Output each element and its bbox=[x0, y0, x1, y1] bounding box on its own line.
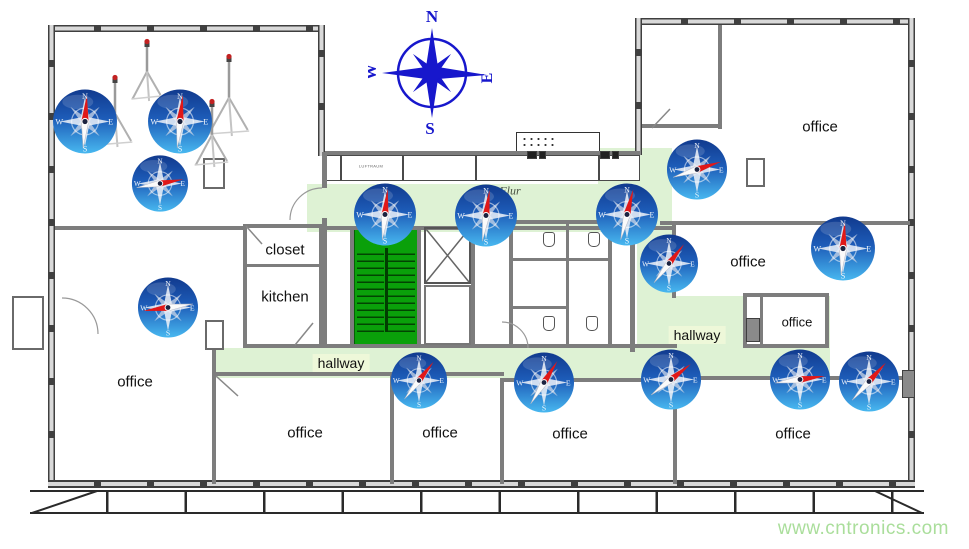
wall-segment bbox=[642, 124, 722, 128]
svg-text:E: E bbox=[408, 211, 413, 220]
rose-letter-s: S bbox=[425, 119, 434, 138]
wall-segment bbox=[500, 378, 504, 484]
svg-text:W: W bbox=[140, 303, 148, 312]
rose-letter-n: N bbox=[426, 7, 439, 26]
stair-divider bbox=[385, 248, 388, 332]
toilet bbox=[543, 316, 555, 331]
svg-text:S: S bbox=[867, 403, 871, 412]
svg-text:S: S bbox=[383, 237, 387, 246]
svg-text:E: E bbox=[108, 118, 113, 127]
compass-marker-icon: N E S W bbox=[454, 184, 518, 253]
svg-text:S: S bbox=[625, 237, 629, 246]
wall-segment bbox=[243, 224, 247, 348]
watermark: www.cntronics.com bbox=[778, 518, 949, 540]
room-label-office: office bbox=[287, 425, 323, 442]
wall-segment bbox=[243, 224, 323, 228]
svg-text:E: E bbox=[690, 259, 695, 268]
svg-text:W: W bbox=[457, 212, 465, 221]
equipment-dots bbox=[521, 136, 555, 149]
svg-text:N: N bbox=[165, 279, 171, 288]
wall-segment bbox=[48, 25, 325, 32]
svg-text:S: S bbox=[417, 401, 421, 409]
room-label-office: office bbox=[782, 315, 813, 330]
toilet bbox=[586, 316, 598, 331]
column-box bbox=[746, 158, 765, 187]
wall-segment bbox=[243, 264, 323, 267]
svg-text:S: S bbox=[841, 271, 846, 280]
svg-text:N: N bbox=[866, 353, 872, 362]
wall-segment bbox=[718, 25, 722, 129]
compass-marker-icon: N E S W bbox=[353, 183, 417, 252]
compass-marker-icon: N E S W bbox=[838, 351, 900, 418]
svg-text:S: S bbox=[667, 284, 671, 293]
floor-plan-canvas: N S W E www.cntronics.com officeofficeof… bbox=[0, 0, 969, 549]
svg-text:N: N bbox=[483, 187, 489, 196]
svg-text:E: E bbox=[866, 245, 871, 254]
svg-text:W: W bbox=[356, 211, 364, 220]
svg-text:W: W bbox=[813, 245, 821, 254]
svg-text:E: E bbox=[180, 180, 185, 188]
svg-text:E: E bbox=[439, 377, 444, 385]
compass-marker-icon: N E S W bbox=[513, 352, 575, 419]
svg-text:N: N bbox=[382, 186, 388, 195]
svg-text:W: W bbox=[643, 375, 651, 384]
compass-marker-icon: N E S W bbox=[639, 234, 699, 299]
svg-text:E: E bbox=[203, 118, 208, 127]
counter-divider bbox=[340, 155, 342, 181]
wall-segment bbox=[322, 152, 327, 188]
compass-marker-icon: N E S W bbox=[52, 89, 118, 160]
wall-segment bbox=[212, 372, 504, 376]
room-label-closet: closet bbox=[265, 242, 304, 259]
wall-segment bbox=[825, 293, 829, 348]
svg-text:W: W bbox=[598, 211, 606, 220]
exterior-balcony-box bbox=[12, 296, 44, 350]
wall-segment bbox=[566, 222, 569, 346]
svg-text:N: N bbox=[541, 354, 547, 363]
svg-text:N: N bbox=[177, 92, 183, 101]
wall-segment bbox=[325, 151, 640, 155]
compass-marker-icon: N E S W bbox=[666, 139, 728, 206]
wall-segment bbox=[212, 348, 216, 484]
wall-segment bbox=[318, 25, 325, 156]
svg-text:W: W bbox=[134, 180, 141, 188]
wall-segment bbox=[908, 18, 915, 484]
wall-segment bbox=[513, 306, 569, 309]
equipment-box bbox=[516, 132, 600, 152]
svg-text:N: N bbox=[416, 355, 422, 363]
svg-text:W: W bbox=[150, 118, 158, 127]
compass-marker-icon: N E S W bbox=[769, 349, 831, 416]
wall-segment bbox=[48, 480, 915, 488]
svg-text:W: W bbox=[55, 118, 63, 127]
room-label-office: office bbox=[422, 425, 458, 442]
svg-text:W: W bbox=[841, 377, 849, 386]
compass-marker-icon: N E S W bbox=[147, 89, 213, 160]
rose-letter-w: W bbox=[368, 64, 380, 80]
svg-text:S: S bbox=[542, 404, 546, 413]
wall-mark bbox=[612, 151, 619, 159]
svg-text:N: N bbox=[797, 351, 803, 360]
svg-text:S: S bbox=[178, 144, 183, 153]
svg-text:S: S bbox=[83, 144, 88, 153]
svg-text:E: E bbox=[190, 303, 195, 312]
svg-text:E: E bbox=[509, 212, 514, 221]
svg-text:S: S bbox=[166, 329, 170, 338]
svg-text:W: W bbox=[772, 375, 780, 384]
wall-segment bbox=[635, 18, 915, 25]
balcony-strip bbox=[30, 490, 924, 514]
svg-text:N: N bbox=[82, 92, 88, 101]
compass-marker-icon: N E S W bbox=[810, 216, 876, 287]
svg-text:E: E bbox=[566, 378, 571, 387]
svg-text:S: S bbox=[695, 191, 699, 200]
wall-segment bbox=[743, 344, 829, 348]
room-label-kitchen: kitchen bbox=[261, 289, 309, 306]
room-label-luftraum: LUFTRAUM bbox=[359, 164, 383, 169]
svg-text:W: W bbox=[642, 259, 650, 268]
compass-marker-icon: N E S W bbox=[137, 277, 199, 344]
svg-text:E: E bbox=[693, 375, 698, 384]
wall-segment bbox=[635, 18, 642, 155]
wall-mark bbox=[539, 151, 546, 159]
svg-text:S: S bbox=[798, 401, 802, 410]
svg-text:E: E bbox=[822, 375, 827, 384]
room-label-office: office bbox=[552, 426, 588, 443]
svg-text:E: E bbox=[891, 377, 896, 386]
wall-segment bbox=[322, 218, 327, 348]
closet-fixture bbox=[746, 318, 760, 342]
svg-text:S: S bbox=[158, 204, 162, 212]
wall-mark bbox=[527, 151, 537, 159]
svg-text:N: N bbox=[666, 236, 672, 245]
counter-divider bbox=[402, 155, 404, 181]
svg-text:N: N bbox=[840, 219, 846, 228]
toilet bbox=[543, 232, 555, 247]
svg-text:S: S bbox=[484, 238, 488, 247]
room-label-office: office bbox=[117, 374, 153, 391]
column-box bbox=[205, 320, 224, 350]
wall-segment bbox=[760, 293, 763, 347]
counter-divider bbox=[475, 155, 477, 181]
wall-segment bbox=[417, 226, 421, 348]
room-label-office: office bbox=[730, 254, 766, 271]
svg-text:E: E bbox=[650, 211, 655, 220]
stair-steps-left bbox=[357, 248, 384, 332]
svg-text:N: N bbox=[624, 186, 630, 195]
stair-steps-right bbox=[388, 248, 415, 332]
compass-rose-icon: N S W E bbox=[368, 6, 498, 138]
wall-mark bbox=[600, 151, 610, 159]
compass-marker-icon: N E S W bbox=[640, 349, 702, 416]
wall-segment bbox=[55, 226, 247, 230]
svg-text:W: W bbox=[516, 378, 524, 387]
svg-text:W: W bbox=[669, 165, 677, 174]
wall-block bbox=[902, 370, 915, 398]
svg-text:N: N bbox=[694, 141, 700, 150]
svg-text:E: E bbox=[719, 165, 724, 174]
compass-marker-icon: N E S W bbox=[390, 352, 448, 415]
room-label-hallway: hallway bbox=[669, 326, 726, 344]
room-label-office: office bbox=[775, 426, 811, 443]
svg-text:N: N bbox=[157, 158, 163, 166]
room-label-hallway: hallway bbox=[313, 354, 370, 372]
svg-text:S: S bbox=[669, 401, 673, 410]
compass-marker-icon: N E S W bbox=[131, 155, 189, 218]
wall-segment bbox=[743, 293, 829, 297]
room-label-office: office bbox=[802, 119, 838, 136]
rose-letter-e: E bbox=[479, 73, 496, 84]
svg-text:N: N bbox=[668, 351, 674, 360]
wall-segment bbox=[513, 258, 612, 261]
svg-text:W: W bbox=[393, 377, 400, 385]
